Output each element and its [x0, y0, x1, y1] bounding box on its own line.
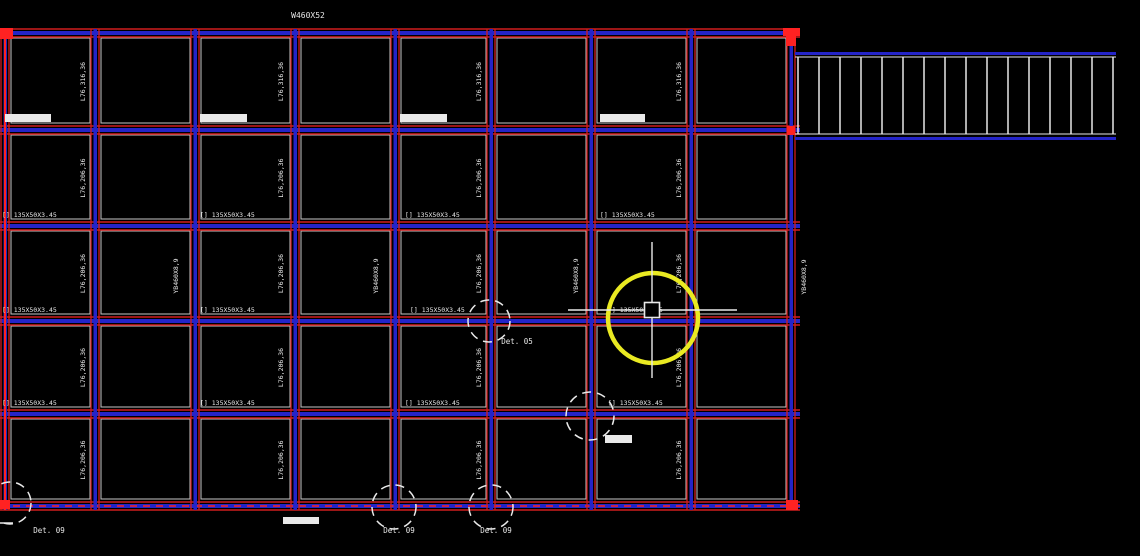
- angle-member-label: L76,206,36: [277, 254, 285, 293]
- angle-member-label: L76,206,36: [675, 158, 683, 197]
- column-blue-core: [590, 29, 594, 510]
- crane-beam-label: YB460X8,9: [172, 258, 180, 293]
- purlin-label: [] 135X50X3.45: [405, 399, 460, 407]
- detail-callout-label: Det. 05: [501, 337, 533, 346]
- angle-member-label: L76,206,36: [675, 254, 683, 293]
- column-marker: [0, 500, 10, 509]
- top-beam-label: W460X52: [291, 11, 325, 20]
- cad-viewport[interactable]: [] 135X50X3.45[] 135X50X3.45[] 135X50X3.…: [0, 0, 1140, 556]
- beam-blue-core: [0, 412, 800, 416]
- purlin-label: [] 135X50X3.45: [2, 399, 57, 407]
- angle-member-label: L76,316,36: [675, 62, 683, 101]
- purlin-label: [] 135X50X3.45: [2, 306, 57, 314]
- angle-member-label: L76,206,36: [475, 440, 483, 479]
- column-marker: [786, 34, 796, 46]
- angle-member-label: L76,316,36: [475, 62, 483, 101]
- white-bar: [605, 435, 632, 443]
- column-marker: [0, 28, 13, 39]
- angle-member-label: L76,206,36: [79, 158, 87, 197]
- detail-callout-label: Det. 09: [480, 526, 512, 535]
- beam-blue-core: [0, 128, 800, 132]
- angle-member-label: L76,316,36: [277, 62, 285, 101]
- crane-beam-label: YB460X8,9: [800, 259, 808, 294]
- column-blue-core: [94, 29, 98, 510]
- column-blue-core: [394, 29, 398, 510]
- pickbox-cursor[interactable]: [645, 303, 660, 318]
- detail-callout-label: Det. 09: [383, 526, 415, 535]
- beam-blue-core: [0, 31, 800, 35]
- white-bar: [5, 114, 51, 122]
- white-bar: [283, 517, 319, 524]
- detail-callout-label: Det. 09: [33, 526, 65, 535]
- angle-member-label: L76,206,36: [277, 348, 285, 387]
- white-bar: [200, 114, 247, 122]
- canvas-background: [0, 0, 1140, 556]
- walkway-bottom-chord: [795, 137, 1116, 140]
- column-blue-core: [790, 29, 794, 510]
- angle-member-label: L76,206,36: [475, 158, 483, 197]
- angle-member-label: L76,206,36: [675, 440, 683, 479]
- purlin-label: [] 135X50X3.45: [608, 399, 663, 407]
- angle-member-label: L76,206,36: [277, 158, 285, 197]
- cad-app-window: [] 135X50X3.45[] 135X50X3.45[] 135X50X3.…: [0, 0, 1140, 556]
- white-bar: [600, 114, 645, 122]
- angle-member-label: L76,206,36: [277, 440, 285, 479]
- walkway-top-chord: [795, 52, 1116, 55]
- purlin-label: [] 135X50X3.45: [200, 306, 255, 314]
- purlin-label: [] 135X50X3.45: [410, 306, 465, 314]
- purlin-label: [] 135X50X3.45: [600, 211, 655, 219]
- purlin-label: [] 135X50X3.45: [200, 399, 255, 407]
- column-blue-core: [194, 29, 198, 510]
- purlin-label: [] 135X50X3.45: [405, 211, 460, 219]
- white-bar: [400, 114, 447, 122]
- beam-blue-core: [0, 224, 800, 228]
- crane-beam-label: YB460X8,9: [372, 258, 380, 293]
- column-marker: [787, 126, 795, 135]
- angle-member-label: L76,206,36: [79, 440, 87, 479]
- column-blue-core: [690, 29, 694, 510]
- column-blue-core: [490, 29, 494, 510]
- purlin-label: [] 135X50X3.45: [2, 211, 57, 219]
- angle-member-label: L76,316,36: [79, 62, 87, 101]
- angle-member-label: L76,206,36: [79, 348, 87, 387]
- column-blue-core: [294, 29, 298, 510]
- purlin-label: [] 135X50X3.45: [200, 211, 255, 219]
- crane-beam-label: YB460X8,9: [572, 258, 580, 293]
- column-marker: [786, 500, 798, 510]
- angle-member-label: L76,206,36: [79, 254, 87, 293]
- beam-blue-core: [0, 319, 800, 323]
- angle-member-label: L76,206,36: [475, 254, 483, 293]
- angle-member-label: L76,206,36: [475, 348, 483, 387]
